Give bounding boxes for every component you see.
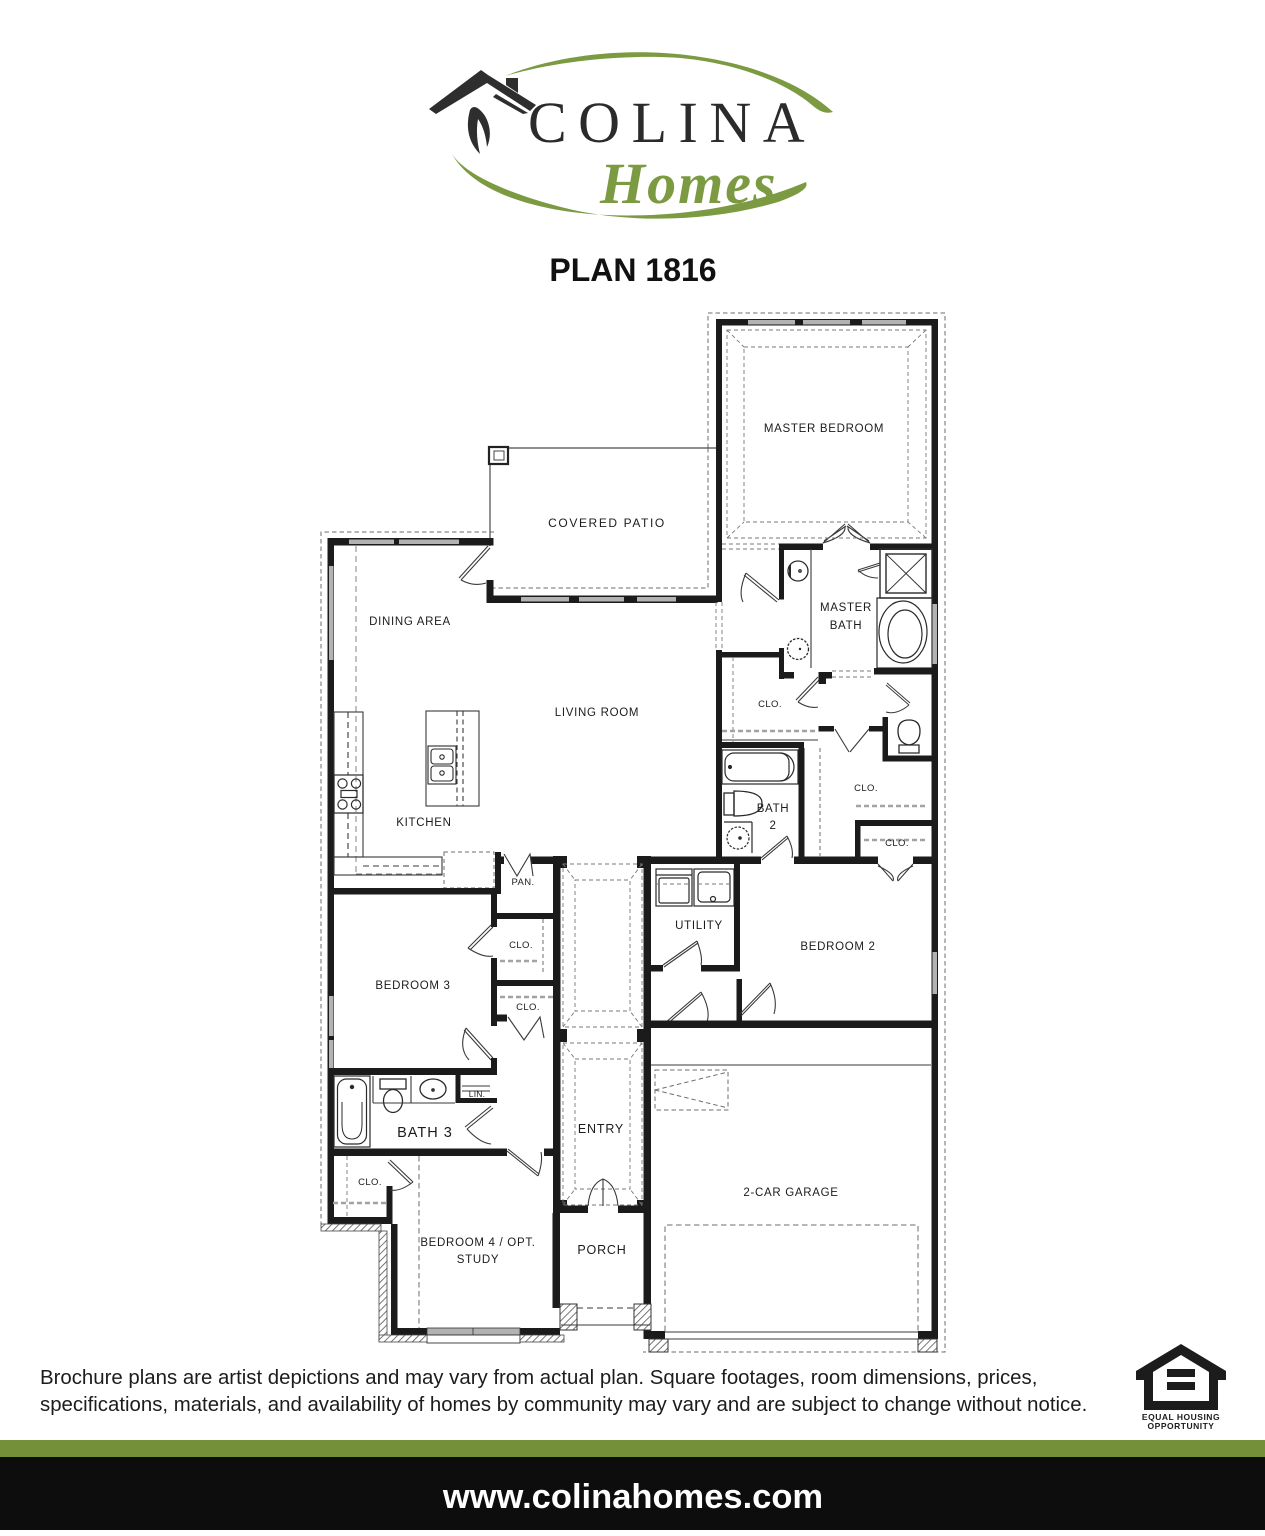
svg-text:BEDROOM 2: BEDROOM 2	[800, 941, 875, 953]
svg-text:BATH 3: BATH 3	[397, 1125, 453, 1141]
svg-text:CLO.: CLO.	[854, 783, 878, 794]
svg-text:DINING AREA: DINING AREA	[369, 616, 451, 628]
svg-text:ENTRY: ENTRY	[578, 1122, 624, 1136]
svg-text:BATH: BATH	[830, 620, 863, 632]
svg-text:COVERED PATIO: COVERED PATIO	[548, 516, 666, 530]
svg-text:CLO.: CLO.	[885, 838, 909, 849]
svg-text:CLO.: CLO.	[358, 1177, 382, 1188]
svg-text:PLAN 1816: PLAN 1816	[549, 252, 716, 288]
svg-text:UTILITY: UTILITY	[675, 920, 723, 932]
svg-text:CLO.: CLO.	[758, 699, 782, 710]
svg-text:LIVING ROOM: LIVING ROOM	[555, 707, 639, 719]
svg-text:STUDY: STUDY	[457, 1254, 499, 1266]
svg-text:BATH: BATH	[757, 803, 790, 815]
svg-text:CLO.: CLO.	[509, 940, 533, 951]
svg-text:LIN.: LIN.	[469, 1089, 485, 1099]
svg-text:MASTER: MASTER	[820, 602, 872, 614]
svg-text:2: 2	[769, 820, 776, 832]
svg-text:MASTER BEDROOM: MASTER BEDROOM	[764, 423, 884, 435]
svg-text:PORCH: PORCH	[577, 1243, 626, 1257]
svg-text:2-CAR GARAGE: 2-CAR GARAGE	[743, 1187, 838, 1199]
svg-text:BEDROOM 4 / OPT.: BEDROOM 4 / OPT.	[420, 1237, 535, 1249]
svg-text:PAN.: PAN.	[511, 877, 534, 888]
svg-text:specifications, materials, and: specifications, materials, and availabil…	[40, 1394, 1087, 1416]
svg-text:COLINA: COLINA	[528, 90, 816, 155]
svg-text:Brochure plans are artist depi: Brochure plans are artist depictions and…	[40, 1367, 1037, 1389]
svg-text:CLO.: CLO.	[516, 1002, 540, 1013]
svg-text:BEDROOM 3: BEDROOM 3	[375, 980, 450, 992]
svg-text:Homes: Homes	[599, 151, 778, 216]
svg-text:OPPORTUNITY: OPPORTUNITY	[1148, 1421, 1215, 1431]
svg-text:KITCHEN: KITCHEN	[396, 817, 451, 829]
svg-text:www.colinahomes.com: www.colinahomes.com	[442, 1478, 823, 1516]
